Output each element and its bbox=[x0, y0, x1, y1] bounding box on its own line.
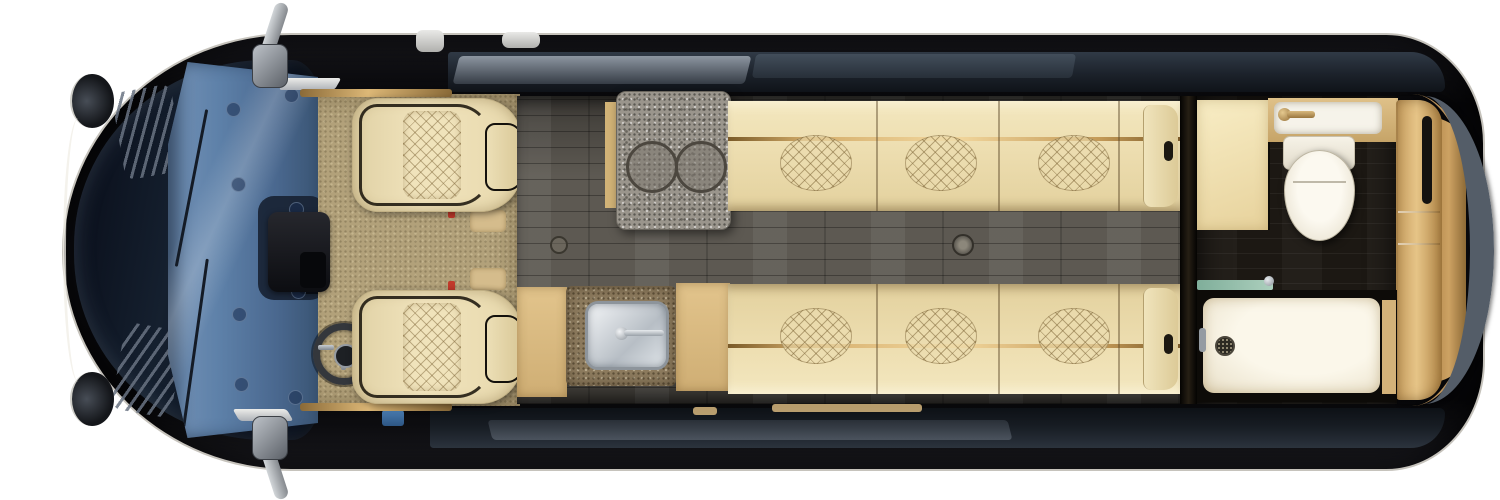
roof-window-band-top bbox=[448, 52, 1445, 92]
cushion-seam bbox=[1118, 101, 1120, 211]
console-screen bbox=[300, 252, 326, 288]
bench-armrest bbox=[1143, 288, 1178, 390]
bench-armrest bbox=[1143, 105, 1178, 207]
front-bumper-chrome bbox=[63, 118, 94, 382]
side-mirror-bottom bbox=[250, 412, 296, 500]
seat-quilt-panel bbox=[403, 303, 461, 391]
toilet-seat-seam bbox=[1293, 181, 1346, 183]
bath-privacy-panel bbox=[1197, 100, 1270, 230]
quilted-insert bbox=[780, 135, 852, 191]
cushion-seam bbox=[1118, 284, 1120, 394]
sofa-bench-top bbox=[728, 101, 1180, 211]
wheel-spoke bbox=[318, 345, 334, 350]
passenger-seat bbox=[352, 98, 522, 212]
mirror-head bbox=[252, 44, 288, 88]
entry-step bbox=[382, 410, 404, 426]
vanity-faucet-arm bbox=[1287, 111, 1315, 118]
door-sill-reflection bbox=[772, 404, 922, 412]
cushion-seam bbox=[876, 284, 878, 394]
cushion-seam bbox=[998, 101, 1000, 211]
cowl-dot bbox=[284, 88, 299, 103]
shower-door-knob bbox=[1264, 276, 1274, 286]
cowl-dot bbox=[234, 377, 249, 392]
roof-fitting bbox=[502, 32, 540, 48]
van-floorplan-stage bbox=[0, 0, 1500, 500]
cushion-seam bbox=[998, 284, 1000, 394]
mirror-head bbox=[252, 416, 288, 460]
kitchen-sink bbox=[585, 301, 669, 370]
cooktop-counter bbox=[616, 91, 731, 230]
seat-pedestal bbox=[470, 268, 506, 290]
galley-cabinet-left bbox=[517, 287, 567, 397]
sofa-bench-bottom bbox=[728, 284, 1180, 394]
seat-quilt-panel bbox=[403, 111, 461, 199]
armrest-speaker bbox=[1164, 334, 1173, 354]
quilted-insert bbox=[1038, 135, 1110, 191]
door-sill-reflection bbox=[693, 407, 717, 415]
floor-ring bbox=[550, 236, 568, 254]
shower-valve bbox=[1199, 328, 1206, 352]
center-console bbox=[268, 212, 330, 292]
quilted-insert bbox=[905, 135, 977, 191]
roof-fitting bbox=[416, 30, 444, 52]
quilted-insert bbox=[780, 308, 852, 364]
seat-pedestal bbox=[470, 210, 506, 232]
vanity-sink bbox=[1274, 102, 1382, 134]
bath-partition-wall bbox=[1180, 96, 1197, 404]
cowl-dot bbox=[232, 307, 247, 322]
side-mirror-top bbox=[250, 2, 296, 90]
burner-right bbox=[675, 141, 727, 193]
door-sill-top bbox=[300, 89, 452, 97]
burner-left bbox=[626, 141, 678, 193]
cowl-dot bbox=[231, 177, 246, 192]
cushion-seam bbox=[876, 101, 878, 211]
armrest-speaker bbox=[1164, 141, 1173, 161]
shower-drain bbox=[1215, 336, 1235, 356]
galley-cabinet-right bbox=[676, 283, 730, 391]
quilted-insert bbox=[1038, 308, 1110, 364]
floor-table-mount bbox=[952, 234, 974, 256]
quilted-insert bbox=[905, 308, 977, 364]
driver-seat bbox=[352, 290, 522, 404]
awning-streak bbox=[453, 56, 752, 84]
door-sill-bottom bbox=[300, 403, 452, 411]
window-streak bbox=[752, 54, 1076, 78]
shower-wall-panel bbox=[1382, 300, 1396, 394]
faucet-arm bbox=[624, 330, 664, 336]
roof-window-band-bottom bbox=[430, 408, 1445, 448]
shower-glass-partition bbox=[1197, 280, 1273, 290]
cowl-dot bbox=[226, 102, 241, 117]
window-streak-bottom bbox=[488, 420, 1013, 440]
